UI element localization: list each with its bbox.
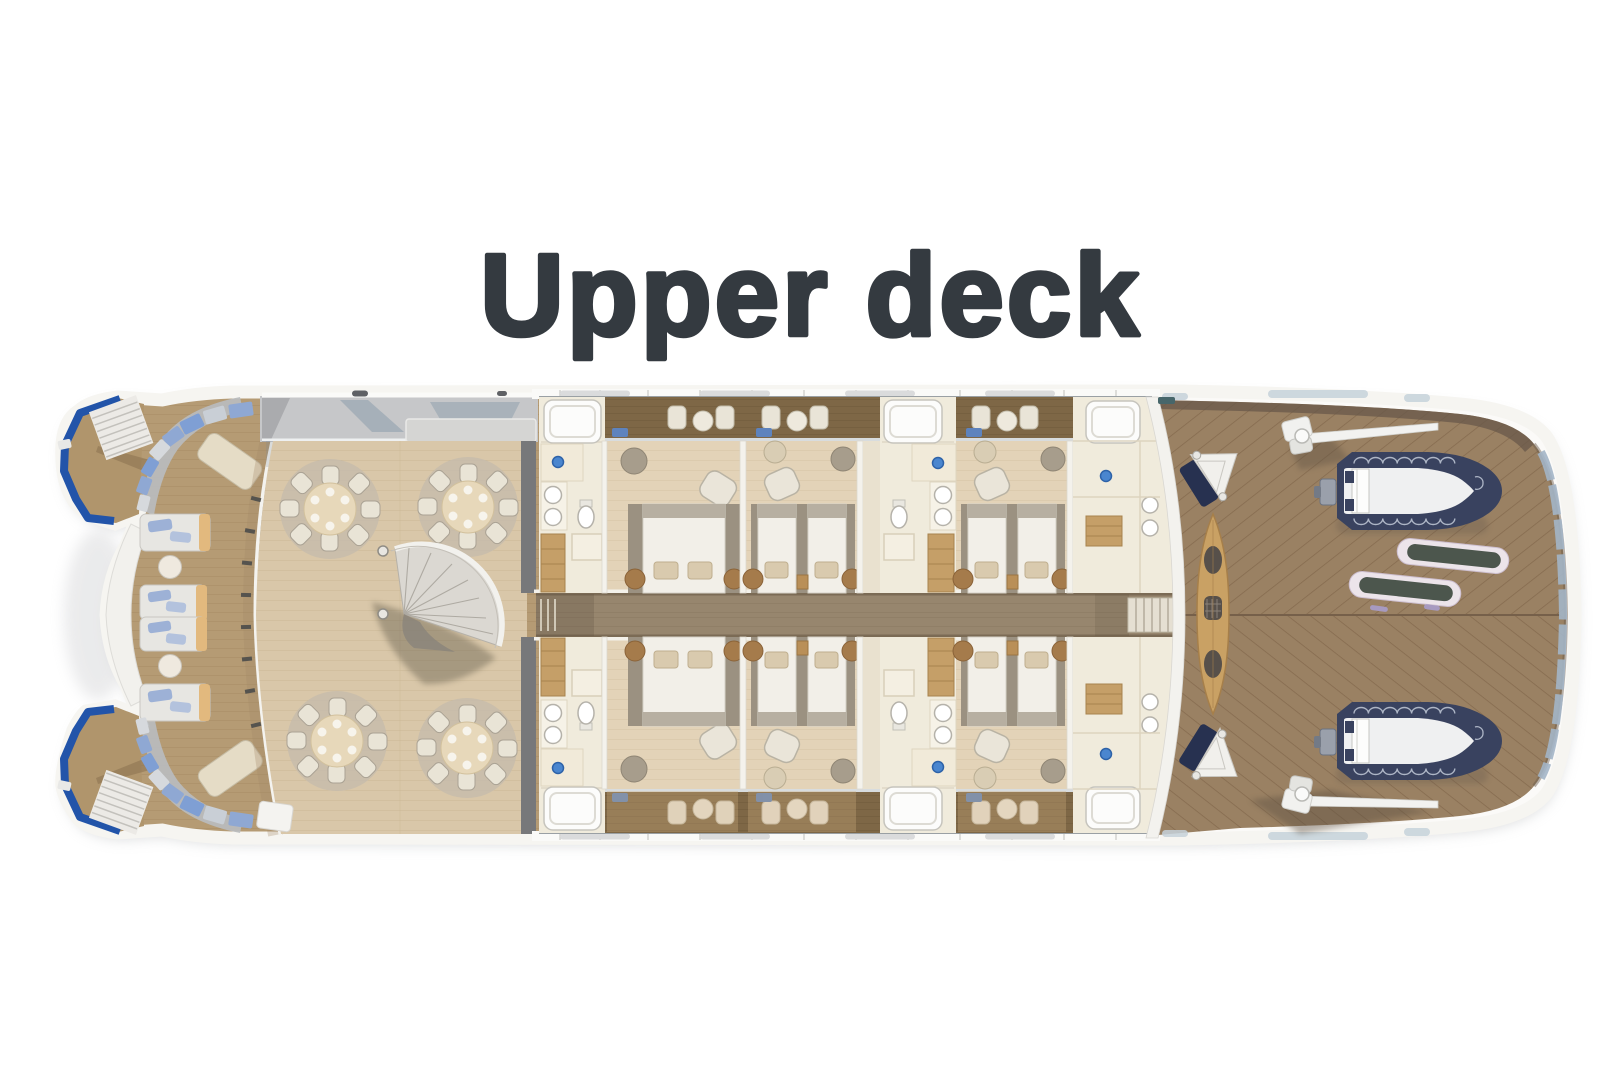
svg-text:Upper deck: Upper deck: [480, 230, 1142, 360]
